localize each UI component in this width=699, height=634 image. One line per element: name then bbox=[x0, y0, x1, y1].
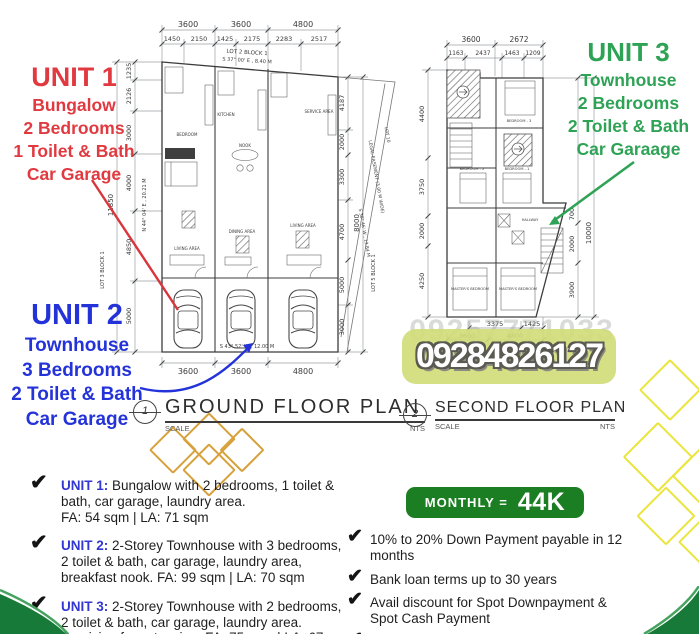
feature-item-unit2: ✔ UNIT 2: 2-Storey Townhouse with 3 bedr… bbox=[30, 538, 347, 585]
dim-label: 11850 bbox=[107, 194, 115, 216]
dim-label: 1209 bbox=[525, 50, 540, 57]
dim-label: 3600 bbox=[231, 367, 251, 376]
room-label: HALLWAY bbox=[522, 218, 539, 222]
check-icon: ✔ bbox=[30, 535, 48, 551]
room-label: NOOK bbox=[239, 143, 251, 148]
lot-label: LOT 5 BLOCK 1 bbox=[371, 254, 377, 291]
dim-label: 2672 bbox=[509, 35, 528, 44]
dim-label: 1163 bbox=[448, 50, 463, 57]
dim-label: 3600 bbox=[461, 35, 480, 44]
dim-label: 4800 bbox=[293, 367, 313, 376]
feature-item-bankloan: ✔ Bank loan terms up to 30 years bbox=[347, 572, 652, 588]
feature-item-discount: ✔ Avail discount for Spot Downpayment & … bbox=[347, 595, 630, 627]
yellow-diamond-icon bbox=[639, 359, 699, 421]
unit3-line: 2 Toilet & Bath bbox=[558, 115, 699, 138]
nts-label: NTS bbox=[600, 422, 615, 431]
ground-plan-title: 1 GROUND FLOOR PLAN SCALE NTS bbox=[133, 396, 425, 433]
second-plan-title: 2 SECOND FLOOR PLAN SCALE NTS bbox=[403, 399, 615, 431]
unit1-title: UNIT 1 bbox=[8, 60, 140, 94]
check-icon: ✔ bbox=[347, 569, 363, 585]
room-label: BEDROOM bbox=[177, 132, 198, 137]
dim-label: 2150 bbox=[191, 35, 208, 43]
room-label: BEDROOM - 3 bbox=[507, 119, 532, 123]
unit3-line: Townhouse bbox=[558, 69, 699, 92]
unit2-line: Car Garage bbox=[2, 408, 152, 433]
dim-label: 2000 bbox=[338, 134, 346, 151]
room-label: LIVING AREA bbox=[174, 246, 200, 251]
phone-number: 09284826127 bbox=[416, 337, 602, 376]
flyer-poster: 3600 3600 4800 1450 2150 1425 2175 2283 … bbox=[0, 0, 699, 634]
lot-label: LOT 10 bbox=[383, 127, 392, 144]
dim-label: 700 bbox=[568, 208, 576, 220]
dim-label: 5000 bbox=[338, 277, 346, 294]
phone-banner: 09284826127 bbox=[402, 329, 616, 384]
dim-label: 4250 bbox=[418, 273, 426, 290]
corner-swoosh-right bbox=[639, 586, 699, 634]
room-label: MASTER'S BEDROOM bbox=[499, 287, 537, 291]
check-icon: ✔ bbox=[30, 475, 48, 491]
dim-label: 3600 bbox=[178, 367, 198, 376]
bearing-label: N 44° 04' E , 20.21 M bbox=[142, 178, 148, 231]
bearing-label: S 37° 00' E , 8.40 M bbox=[222, 56, 272, 65]
dim-label: 2517 bbox=[311, 35, 328, 43]
monthly-label: MONTHLY = bbox=[425, 495, 508, 510]
scale-label: SCALE bbox=[165, 424, 190, 433]
unit1-line: 2 Bedrooms bbox=[8, 117, 140, 140]
dim-label: 4800 bbox=[293, 20, 313, 29]
feature-label: UNIT 2: bbox=[61, 538, 108, 553]
dim-label: 1450 bbox=[164, 35, 181, 43]
dim-label: 4400 bbox=[418, 106, 426, 123]
dim-label: 4850 bbox=[125, 239, 133, 256]
dim-label: 2437 bbox=[475, 50, 490, 57]
dim-label: 1425 bbox=[217, 35, 234, 43]
dim-label: 3000 bbox=[338, 319, 346, 336]
unit3-line: Car Garaage bbox=[558, 138, 699, 161]
unit3-title: UNIT 3 bbox=[558, 36, 699, 69]
plan-title-text: SECOND FLOOR PLAN bbox=[435, 399, 615, 421]
monthly-badge: MONTHLY = 44K bbox=[406, 487, 584, 518]
feature-item-unit1: ✔ UNIT 1: Bungalow with 2 bedrooms, 1 to… bbox=[30, 478, 347, 525]
dim-label: 3300 bbox=[338, 169, 346, 186]
unit1-line: Bungalow bbox=[8, 94, 140, 117]
unit2-callout: UNIT 2 Townhouse 3 Bedrooms 2 Toilet & B… bbox=[2, 296, 152, 432]
unit2-line: 3 Bedrooms bbox=[2, 359, 152, 384]
dim-label: 4700 bbox=[338, 224, 346, 241]
feature-text: Avail discount for Spot Downpayment & Sp… bbox=[370, 595, 607, 626]
plan-number-circle: 2 bbox=[403, 403, 427, 427]
room-label: SERVICE AREA bbox=[305, 109, 334, 114]
dim-label: 2283 bbox=[276, 35, 293, 43]
dim-label: 3750 bbox=[418, 179, 426, 196]
monthly-value: 44K bbox=[518, 488, 565, 517]
plan-number: 2 bbox=[412, 408, 418, 420]
lot-label: LOT 2 BLOCK 1 bbox=[226, 49, 268, 58]
lot-label: LOT 3 BLOCK 1 bbox=[100, 251, 106, 288]
dim-label: 1463 bbox=[504, 50, 519, 57]
dim-label: 3600 bbox=[178, 20, 198, 29]
feature-list-right: ✔ 10% to 20% Down Payment payable in 12 … bbox=[347, 532, 652, 634]
room-label: KITCHEN bbox=[217, 112, 234, 117]
ground-room-labels: BEDROOM KITCHEN SERVICE AREA NOOK DINING… bbox=[174, 109, 333, 251]
dim-label: 3900 bbox=[568, 282, 576, 299]
feature-text: 10% to 20% Down Payment payable in 12 mo… bbox=[370, 532, 622, 563]
feature-label: UNIT 1: bbox=[61, 478, 108, 493]
room-label: MASTER'S BEDROOM bbox=[451, 287, 489, 291]
unit2-line: Townhouse bbox=[2, 334, 152, 359]
unit3-callout: UNIT 3 Townhouse 2 Bedrooms 2 Toilet & B… bbox=[558, 36, 699, 161]
dim-label: 2000 bbox=[568, 236, 576, 253]
feature-text: Bank loan terms up to 30 years bbox=[370, 572, 557, 587]
second-hatched-areas bbox=[447, 70, 532, 166]
plan-title-text: GROUND FLOOR PLAN bbox=[165, 396, 425, 423]
unit3-line: 2 Bedrooms bbox=[558, 92, 699, 115]
room-label: BEDROOM - 2 bbox=[460, 167, 485, 171]
scale-label: SCALE bbox=[435, 422, 460, 431]
feature-item-downpayment: ✔ 10% to 20% Down Payment payable in 12 … bbox=[347, 532, 652, 564]
dim-label: 10000 bbox=[585, 222, 593, 244]
feature-stats: FA: 54 sqm | LA: 71 sqm bbox=[61, 510, 347, 526]
dim-label: 4187 bbox=[338, 95, 346, 112]
unit1-line: Car Garage bbox=[8, 163, 140, 186]
unit2-title: UNIT 2 bbox=[2, 296, 152, 334]
room-label: DINING AREA bbox=[229, 229, 256, 234]
check-icon: ✔ bbox=[347, 592, 363, 608]
unit2-line: 2 Toilet & Bath bbox=[2, 383, 152, 408]
dim-label: 2175 bbox=[244, 35, 261, 43]
room-label: BEDROOM - 1 bbox=[505, 167, 530, 171]
easement-lines bbox=[338, 77, 395, 352]
dim-label: 2000 bbox=[418, 223, 426, 240]
corner-swoosh-left bbox=[0, 584, 80, 634]
check-icon: ✔ bbox=[347, 529, 363, 545]
bearing-label: S 43° 52' W , 12.00 M bbox=[220, 344, 274, 350]
room-label: LIVING AREA bbox=[290, 223, 316, 228]
unit1-callout: UNIT 1 Bungalow 2 Bedrooms 1 Toilet & Ba… bbox=[8, 60, 140, 186]
dim-label: 3600 bbox=[231, 20, 251, 29]
unit1-line: 1 Toilet & Bath bbox=[8, 140, 140, 163]
